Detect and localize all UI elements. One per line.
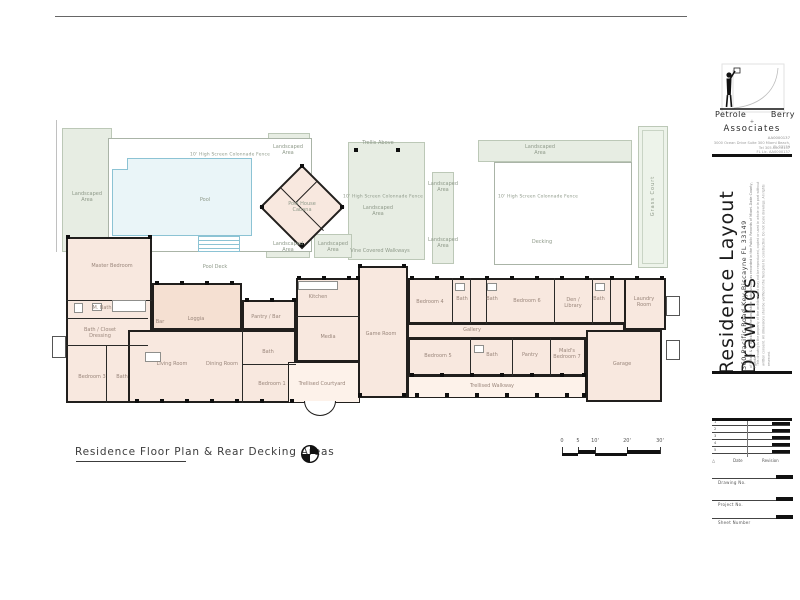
wall-partition xyxy=(512,338,513,376)
column-dot xyxy=(402,264,406,268)
revision-row-bar xyxy=(772,450,790,453)
sheet-title: Residence Floor Plan & Rear Decking Area… xyxy=(75,446,334,458)
column-dot xyxy=(148,235,152,239)
column-dot xyxy=(635,276,639,280)
plumbing-fixture xyxy=(595,283,605,291)
property-line-top xyxy=(55,16,687,17)
site-label: Pool Deck xyxy=(203,264,228,270)
room-label: Bar xyxy=(156,319,165,325)
north-arrow-icon xyxy=(300,444,320,464)
sheet-number-label: Sheet Number xyxy=(718,520,751,525)
room-label: Bedroom 4 xyxy=(416,299,443,305)
room-label: Pantry / Bar xyxy=(251,314,280,320)
column-dot xyxy=(410,373,414,377)
column-dot xyxy=(500,373,504,377)
revision-table-divider xyxy=(747,421,748,457)
room-label: Dining Room xyxy=(206,361,238,367)
room-label: Game Room xyxy=(366,331,397,337)
scale-tick-label: 5 xyxy=(576,438,579,444)
revision-row-number: 5 xyxy=(714,448,716,452)
entry-arc-shape xyxy=(304,401,336,416)
loggia-shape xyxy=(152,283,242,330)
wall-partition xyxy=(242,330,243,403)
column-dot xyxy=(435,276,439,280)
firm-name-first: Petrole xyxy=(715,110,746,119)
column-dot xyxy=(460,276,464,280)
wall-partition xyxy=(296,316,360,317)
wall-partition xyxy=(452,278,453,324)
column-dot xyxy=(260,205,264,209)
room-label: Bath xyxy=(116,374,128,380)
drawing-sheet: { "sheet": { "plan_title": "Residence Fl… xyxy=(0,0,800,600)
column-dot xyxy=(155,281,159,285)
column-dot xyxy=(180,281,184,285)
column-dot xyxy=(300,164,304,168)
entry-stoop-shape xyxy=(52,336,66,358)
site-label: Landscaped Area xyxy=(271,144,305,156)
site-label: Pool House Cabana xyxy=(283,201,321,213)
pool-step-line xyxy=(198,248,240,249)
room-label: Pantry xyxy=(522,352,538,358)
room-label: M. Bath xyxy=(92,305,111,311)
wall-partition xyxy=(242,364,296,365)
revision-row-bar xyxy=(772,422,790,425)
wall-partition xyxy=(550,338,551,376)
column-dot xyxy=(356,276,360,280)
wall-partition xyxy=(106,345,107,403)
site-label: Trellis Above xyxy=(362,140,393,146)
revision-row-line xyxy=(712,432,790,433)
column-dot xyxy=(160,399,164,403)
column-dot xyxy=(535,393,539,397)
revision-row-number: 2 xyxy=(714,427,716,431)
column-dot xyxy=(505,393,509,397)
scale-tick-label: 30' xyxy=(656,438,664,444)
kitchen-media-shape xyxy=(296,278,360,362)
firm-suffix: Associates xyxy=(712,124,792,134)
field-bar xyxy=(776,497,793,501)
column-dot xyxy=(475,393,479,397)
project-address: 360 Pacific Road Key Biscayne FL 33149 xyxy=(740,170,748,370)
column-dot xyxy=(415,393,419,397)
room-label: Master Bedroom xyxy=(91,263,132,269)
column-dot xyxy=(582,373,586,377)
property-line-left xyxy=(56,120,57,252)
revision-revision-header: Revision xyxy=(762,458,779,463)
plumbing-fixture xyxy=(298,281,338,290)
column-dot xyxy=(185,399,189,403)
revision-row-line xyxy=(712,439,790,440)
room-label: Trellised Courtyard xyxy=(299,381,346,387)
room-label: Loggia xyxy=(188,316,205,322)
room-label: Bedroom 1 xyxy=(258,381,285,387)
scale-tick-label: 10' xyxy=(591,438,599,444)
wall-partition xyxy=(470,278,471,324)
room-label: Den / Library xyxy=(561,297,585,309)
column-dot xyxy=(292,298,296,302)
garden-step-shape xyxy=(666,296,680,316)
room-label: Bath xyxy=(456,296,468,302)
site-label: Pool xyxy=(200,197,210,203)
wall-partition xyxy=(470,338,471,376)
column-dot xyxy=(396,148,400,152)
field-line xyxy=(712,500,776,501)
plumbing-fixture xyxy=(112,300,146,312)
room-label: Media xyxy=(320,334,335,340)
revision-row-line xyxy=(712,446,790,447)
site-label: Landscaped Area xyxy=(523,144,557,156)
site-label: Landscaped Area xyxy=(428,237,458,249)
column-dot xyxy=(410,276,414,280)
garden-step-shape xyxy=(666,340,680,360)
room-label: Maid's Bedroom 7 xyxy=(552,348,582,360)
site-label: 10' High Screen Colonnade Fence xyxy=(498,194,578,199)
divider-bar xyxy=(712,371,792,374)
column-dot xyxy=(560,276,564,280)
column-dot xyxy=(205,281,209,285)
room-label: Bedroom 3 xyxy=(78,374,105,380)
room-label: Bath / Closet Dressing xyxy=(83,327,117,339)
site-label: Decking xyxy=(532,239,552,245)
column-dot xyxy=(340,205,344,209)
column-dot xyxy=(510,276,514,280)
column-dot xyxy=(210,399,214,403)
landscape-area-shape xyxy=(62,128,112,252)
wall-partition xyxy=(554,278,555,324)
room-label: Bath xyxy=(486,296,498,302)
revision-row-number: 3 xyxy=(714,434,716,438)
revision-row-bar xyxy=(772,429,790,432)
scale-tick-label: 0 xyxy=(560,438,563,444)
column-dot xyxy=(270,298,274,302)
column-dot xyxy=(560,373,564,377)
column-dot xyxy=(402,393,406,397)
room-label: Bedroom 6 xyxy=(513,298,540,304)
scale-bar: 0 5 10' 20' 30' xyxy=(558,438,664,462)
decking-enclosure xyxy=(494,162,632,265)
column-dot xyxy=(230,281,234,285)
field-line xyxy=(712,478,776,479)
column-dot xyxy=(66,235,70,239)
room-label: Trellised Walkway xyxy=(470,383,514,389)
plumbing-fixture xyxy=(455,283,465,291)
revision-date-header: Date xyxy=(733,458,743,463)
site-label: Grass Court xyxy=(650,176,656,217)
site-label: 10' High Screen Colonnade Fence xyxy=(190,152,270,157)
column-dot xyxy=(322,276,326,280)
column-dot xyxy=(535,276,539,280)
room-label: Garage xyxy=(613,361,631,367)
column-dot xyxy=(445,393,449,397)
site-label: Landscaped Area xyxy=(361,205,395,217)
revision-row-line xyxy=(712,453,790,454)
site-label: Landscaped Area xyxy=(428,181,458,193)
column-dot xyxy=(585,276,589,280)
column-dot xyxy=(354,148,358,152)
field-bar xyxy=(776,475,793,479)
room-label: Bath xyxy=(262,349,274,355)
disclaimer-text: This drawing is the property of the arch… xyxy=(756,170,786,366)
revision-row-line xyxy=(712,425,790,426)
field-bar xyxy=(776,515,793,519)
pool-step-line xyxy=(198,244,240,245)
column-dot xyxy=(582,393,586,397)
site-label: Landscaped Area xyxy=(271,241,305,253)
revision-row-number: 4 xyxy=(714,441,716,445)
room-label: Bath xyxy=(593,296,605,302)
revision-row-bar xyxy=(772,443,790,446)
revision-row-bar xyxy=(772,436,790,439)
column-dot xyxy=(530,373,534,377)
site-label: Landscaped Area xyxy=(70,191,104,203)
room-label: Living Room xyxy=(157,361,188,367)
wall-partition xyxy=(610,278,611,324)
column-dot xyxy=(135,399,139,403)
room-label: Bath xyxy=(486,352,498,358)
scale-tick-label: 20' xyxy=(623,438,631,444)
pool-step-line xyxy=(198,240,240,241)
column-dot xyxy=(610,276,614,280)
column-dot xyxy=(660,276,664,280)
column-dot xyxy=(260,399,264,403)
pool-shape xyxy=(112,158,252,236)
site-label: Vine Covered Walkways xyxy=(350,248,410,254)
column-dot xyxy=(358,393,362,397)
cabana-partition xyxy=(296,182,317,203)
revision-delta-icon: △ xyxy=(712,458,715,463)
plumbing-fixture xyxy=(74,303,83,313)
firm-license: AA0000137 xyxy=(712,135,790,140)
divider-bar xyxy=(712,154,792,157)
column-dot xyxy=(565,393,569,397)
revision-table-top-bar xyxy=(712,418,792,421)
pool-step-notch xyxy=(112,158,128,170)
wall-partition xyxy=(66,345,148,346)
drawing-no-label: Drawing No. xyxy=(718,480,746,485)
column-dot xyxy=(485,276,489,280)
landscape-area-shape xyxy=(348,142,425,260)
plumbing-fixture xyxy=(474,345,484,353)
column-dot xyxy=(297,276,301,280)
column-dot xyxy=(358,264,362,268)
wall-partition xyxy=(66,318,148,319)
site-label: Landscaped Area xyxy=(316,241,350,253)
firm-name-last: Berry xyxy=(771,110,795,119)
column-dot xyxy=(245,298,249,302)
room-label: Laundry Room xyxy=(631,296,657,308)
firm-address-line: Tel 305.000.0137 xyxy=(712,146,790,150)
column-dot xyxy=(347,276,351,280)
plumbing-fixture xyxy=(487,283,497,291)
project-no-label: Project No. xyxy=(718,502,743,507)
revision-row-number: 1 xyxy=(714,420,716,424)
column-dot xyxy=(470,373,474,377)
room-label: Bedroom 5 xyxy=(424,353,451,359)
sheet-title-underline xyxy=(76,461,186,462)
field-line xyxy=(712,518,776,519)
room-label: Gallery xyxy=(463,327,481,333)
column-dot xyxy=(290,399,294,403)
column-dot xyxy=(440,373,444,377)
site-label: 10' High Screen Colonnade Fence xyxy=(343,194,423,199)
room-label: Kitchen xyxy=(309,294,328,300)
column-dot xyxy=(235,399,239,403)
